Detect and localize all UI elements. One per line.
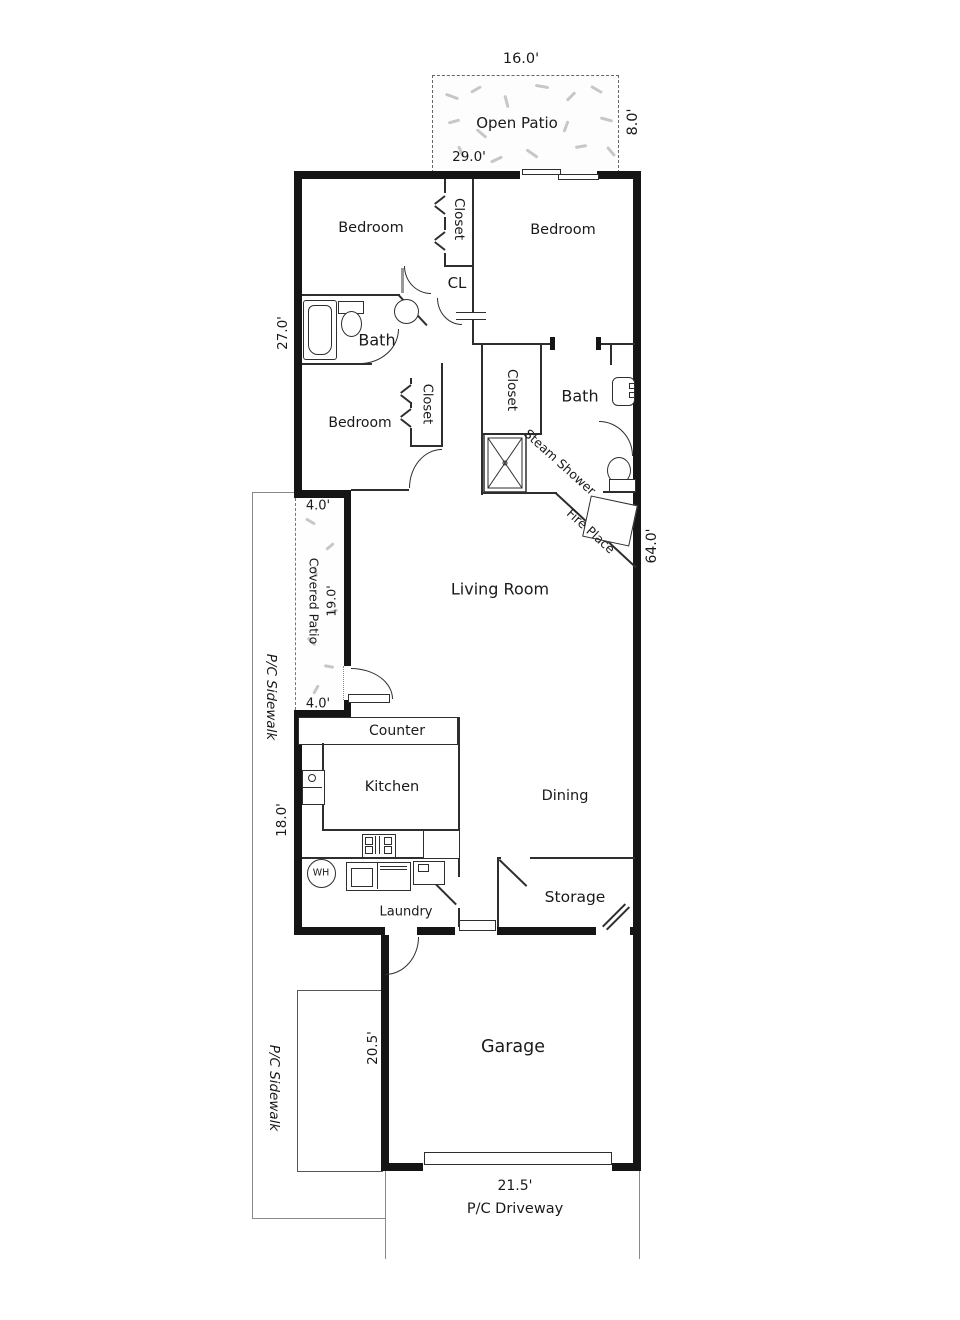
dim-open-patio-width: 16.0' xyxy=(503,51,539,67)
label-closet-top: Closet xyxy=(451,198,467,240)
label-bedroom-top-left: Bedroom xyxy=(338,220,404,236)
driveway-edge-right xyxy=(639,1171,640,1259)
dim-upper-depth: 27.0' xyxy=(275,316,291,350)
door-arc-bedroom3 xyxy=(409,449,442,488)
floor-plan: WH Open Patio Bedroom Closet Bedroom CL … xyxy=(0,0,960,1320)
dim-covered-patio-bottom: 4.0' xyxy=(306,697,330,712)
dim-garage-door-width: 21.5' xyxy=(497,1178,532,1194)
sidewalk-panel xyxy=(297,990,383,1172)
sidewalk-boundary-bottom xyxy=(252,1218,386,1219)
wall-left-upper xyxy=(294,171,302,498)
sink-faucet-dot xyxy=(629,383,635,389)
hall-bottom-wall xyxy=(351,489,409,491)
dryer-lid-line xyxy=(380,866,407,867)
label-bedroom-mid: Bedroom xyxy=(328,415,391,431)
washer-door xyxy=(351,868,373,887)
utility-sink-faucet xyxy=(418,864,429,872)
label-garage: Garage xyxy=(481,1037,545,1057)
closet-door-chevron xyxy=(432,193,445,217)
label-sidewalk-upper: P/C Sidewalk xyxy=(263,654,279,740)
stove-burner xyxy=(365,837,373,845)
label-counter: Counter xyxy=(369,723,425,739)
door-arc-bath2 xyxy=(599,421,633,456)
label-dining: Dining xyxy=(542,788,589,804)
water-heater-label: WH xyxy=(313,868,330,879)
label-laundry: Laundry xyxy=(380,905,433,920)
dim-covered-patio-length: 19.0' xyxy=(324,585,339,616)
closet-top-wall-left-seg xyxy=(444,179,446,193)
dryer-lid-line xyxy=(380,869,407,870)
label-sidewalk-lower: P/C Sidewalk xyxy=(266,1045,282,1131)
sink-basin xyxy=(394,299,419,324)
dim-garage-depth: 20.5' xyxy=(365,1031,381,1065)
opening-jamb xyxy=(596,337,601,350)
hall-wall-seg xyxy=(458,857,460,877)
cased-opening xyxy=(456,312,486,320)
storage-top-wall xyxy=(530,857,635,859)
label-cl: CL xyxy=(448,274,467,292)
closet-top-wall-right xyxy=(472,179,474,345)
label-living-room: Living Room xyxy=(451,580,549,599)
label-closet-right: Closet xyxy=(504,369,520,411)
toilet-base xyxy=(603,491,635,493)
storage-door-leaf xyxy=(499,859,528,887)
kitchen-faucet xyxy=(308,774,316,782)
shower-stall xyxy=(483,433,527,493)
sidewalk-boundary-top xyxy=(252,492,296,493)
storage-left-wall xyxy=(497,857,499,927)
stove-burner xyxy=(365,846,373,854)
washer-dryer-divider xyxy=(377,862,378,889)
closet-mid-right xyxy=(441,363,443,447)
dim-open-patio-depth: 8.0' xyxy=(625,108,641,135)
closet-mid-bottom xyxy=(410,445,443,447)
stove-burner xyxy=(384,846,392,854)
garage-door-panel xyxy=(424,1152,612,1165)
label-bedroom-top-right: Bedroom xyxy=(530,222,596,238)
dim-covered-patio-top: 4.0' xyxy=(306,499,330,514)
closet-right-wall xyxy=(540,343,542,435)
label-steam-shower: Steam Shower xyxy=(521,426,599,498)
door-leaf xyxy=(348,694,390,703)
stove-center-line xyxy=(375,836,376,854)
label-closet-mid: Closet xyxy=(420,384,435,425)
back-door xyxy=(459,920,496,931)
stove-center-line xyxy=(379,836,380,854)
toilet-partition xyxy=(610,343,612,365)
wall-right xyxy=(633,171,641,1171)
driveway-edge-left xyxy=(385,1171,386,1259)
stove-burner xyxy=(384,837,392,845)
kitchen-sink-divider xyxy=(303,787,322,788)
dishwasher xyxy=(423,830,460,859)
dim-house-width: 29.0' xyxy=(452,149,486,165)
closet-mid-left-seg xyxy=(410,428,412,446)
garage-entry-opening xyxy=(385,927,417,935)
closet-door-chevron xyxy=(398,406,411,430)
opening-jamb xyxy=(550,337,555,350)
door-arc-garage-entry xyxy=(385,937,419,975)
label-bath-right: Bath xyxy=(561,387,598,406)
bathtub-basin xyxy=(308,305,332,355)
label-kitchen: Kitchen xyxy=(365,779,420,795)
patio-sliding-door xyxy=(558,174,599,180)
label-driveway: P/C Driveway xyxy=(467,1201,563,1217)
open-door-leaf xyxy=(401,268,404,293)
label-storage: Storage xyxy=(545,888,606,906)
label-covered-patio: Covered Patio xyxy=(307,558,322,645)
door-arc-bedroom1 xyxy=(404,266,431,294)
patio-sliding-door xyxy=(522,169,561,175)
label-bath-left: Bath xyxy=(358,331,395,350)
closet-top-wall-bottom xyxy=(444,265,474,267)
hall-wall xyxy=(598,343,635,345)
bath1-top-wall xyxy=(302,294,400,296)
dim-house-depth: 64.0' xyxy=(644,528,660,563)
sidewalk-boundary-left xyxy=(252,492,253,1219)
sink-faucet-dot xyxy=(629,392,635,398)
closet-door-chevron xyxy=(432,229,445,253)
storage-ext-door-opening xyxy=(596,927,630,935)
label-open-patio: Open Patio xyxy=(476,114,558,132)
dim-kitchen-depth: 18.0' xyxy=(274,803,290,837)
